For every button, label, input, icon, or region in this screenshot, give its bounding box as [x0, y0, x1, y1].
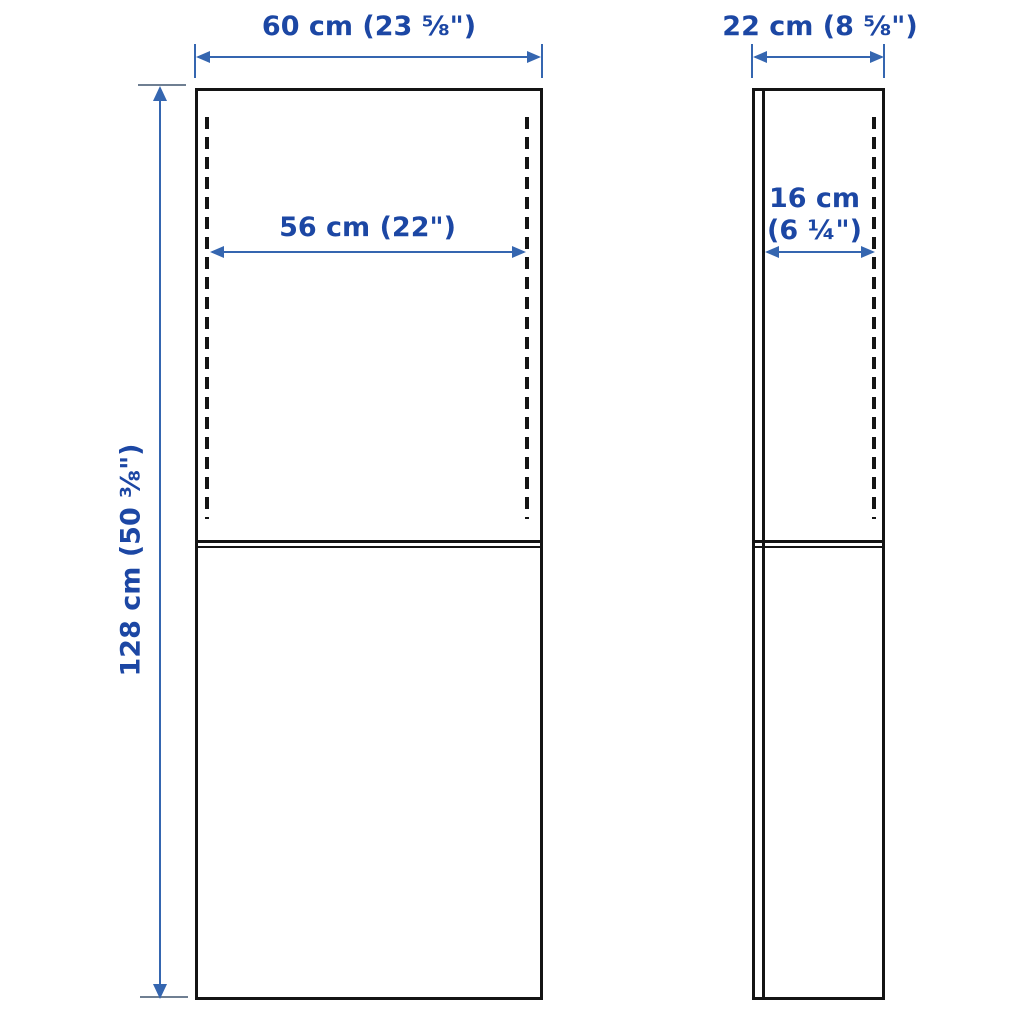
side-divider-line-upper	[755, 540, 882, 543]
dimension-diagram: 60 cm (23 ⅝") 56 cm (22") 128 cm (50 ⅜")	[0, 0, 1024, 1024]
front-width-extension-right	[541, 44, 543, 78]
front-inner-width-dimension-line	[212, 251, 524, 253]
side-inner-depth-label-line2: (6 ¼")	[752, 215, 877, 246]
front-divider-line-upper	[198, 540, 540, 543]
arrowhead-down-icon	[153, 984, 167, 999]
front-dashed-edge-right	[525, 117, 529, 519]
arrowhead-up-icon	[153, 86, 167, 101]
side-inner-depth-dimension-line	[767, 251, 873, 253]
side-depth-label: 22 cm (8 ⅝")	[700, 11, 940, 42]
arrowhead-left-icon	[196, 51, 210, 63]
front-inner-width-label: 56 cm (22")	[195, 212, 540, 243]
arrowhead-left-icon	[753, 51, 767, 63]
side-depth-dimension-line	[755, 56, 882, 58]
arrowhead-left-icon	[765, 246, 779, 258]
side-inner-depth-label-line1: 16 cm	[752, 183, 877, 214]
side-divider-line-lower	[755, 546, 882, 548]
height-dimension-line	[159, 96, 161, 990]
arrowhead-right-icon	[512, 246, 526, 258]
front-width-dimension-line	[198, 56, 539, 58]
height-label: 128 cm (50 ⅜")	[116, 444, 147, 677]
arrowhead-left-icon	[210, 246, 224, 258]
front-width-label: 60 cm (23 ⅝")	[195, 11, 543, 42]
side-dashed-edge	[872, 117, 876, 519]
arrowhead-right-icon	[527, 51, 541, 63]
front-divider-line-lower	[198, 546, 540, 548]
arrowhead-right-icon	[861, 246, 875, 258]
front-dashed-edge-left	[205, 117, 209, 519]
arrowhead-right-icon	[870, 51, 884, 63]
